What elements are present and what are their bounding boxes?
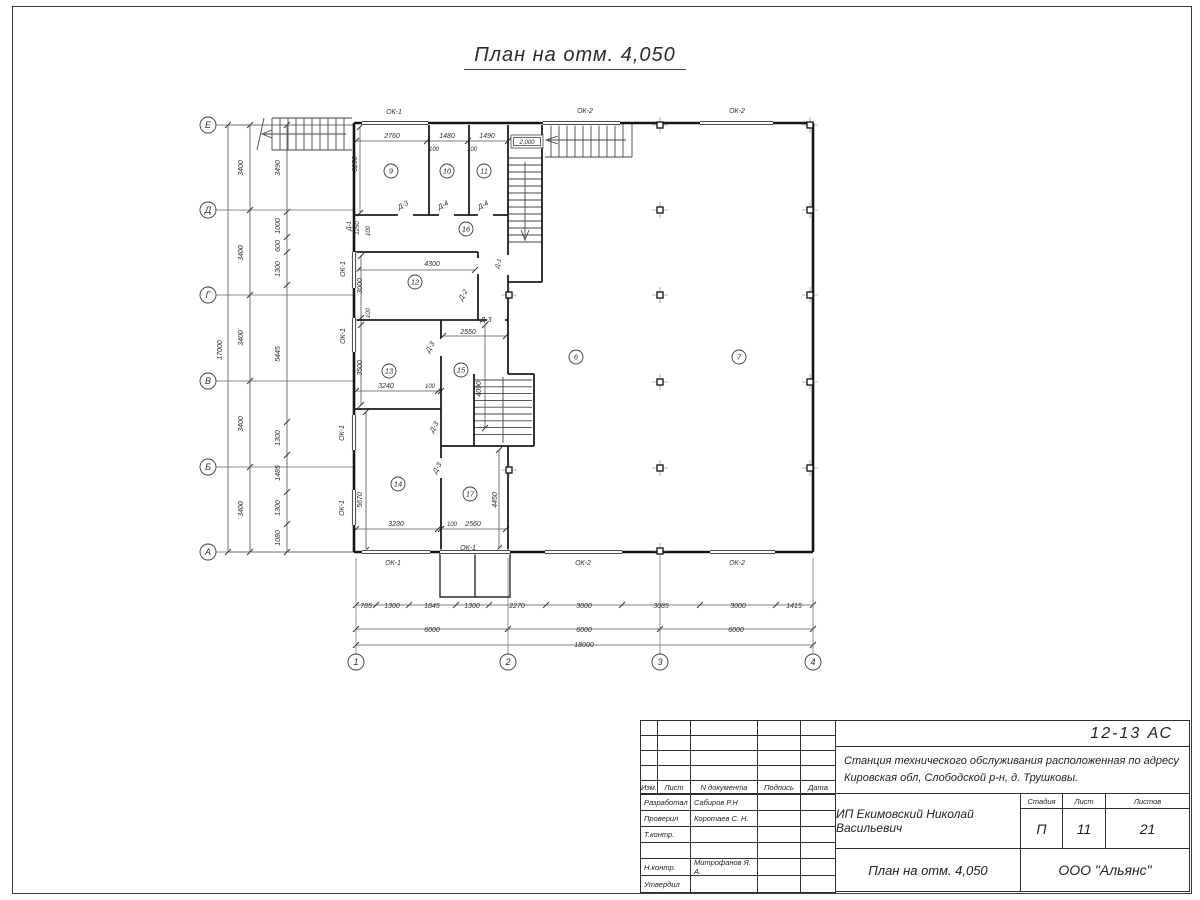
tb-sheet-value: 11 (1062, 808, 1106, 849)
tb-role: Разработал (640, 794, 691, 811)
tb-date (800, 875, 836, 893)
tb-client: ИП Екимовский Николай Васильевич (835, 793, 1021, 849)
revision-cell (690, 720, 758, 736)
drawing-heading-wrap: План на отм. 4,050 (430, 44, 720, 70)
tb-col-doc: N документа (690, 780, 758, 794)
tb-signature (757, 858, 801, 876)
tb-name (690, 875, 758, 893)
revision-cell (657, 765, 691, 781)
tb-sheets-label: Листов (1105, 793, 1190, 809)
tb-col-izm: Изм. (640, 780, 658, 794)
tb-signature (757, 826, 801, 843)
tb-signature (757, 810, 801, 827)
tb-drawing-title: План на отм. 4,050 (835, 848, 1021, 892)
tb-sheet-label: Лист (1062, 793, 1106, 809)
revision-cell (800, 765, 836, 781)
tb-date (800, 810, 836, 827)
drawing-sheet: План на отм. 4,050 (0, 0, 1200, 900)
tb-stage-value: П (1020, 808, 1063, 849)
revision-cell (690, 735, 758, 751)
revision-cell (657, 720, 691, 736)
tb-col-sign: Подпись (757, 780, 801, 794)
revision-cell (800, 750, 836, 766)
tb-date (800, 842, 836, 859)
revision-cell (690, 750, 758, 766)
tb-role: Утвердил (640, 875, 691, 893)
tb-name (690, 842, 758, 859)
title-block: Изм. Лист N документа Подпись Дата Разра… (640, 720, 1190, 892)
revision-cell (640, 765, 658, 781)
tb-stage-label: Стадия (1020, 793, 1063, 809)
tb-role: Н.контр. (640, 858, 691, 876)
tb-col-list: Лист (657, 780, 691, 794)
tb-name: Коротаев С. Н. (690, 810, 758, 827)
drawing-heading: План на отм. 4,050 (464, 44, 686, 70)
tb-doc-number: 12-13 АС (835, 720, 1190, 747)
revision-cell (800, 735, 836, 751)
revision-cell (757, 765, 801, 781)
revision-cell (640, 735, 658, 751)
tb-project-description: Станция технического обслуживания распол… (835, 746, 1190, 794)
revision-cell (690, 765, 758, 781)
tb-signature (757, 842, 801, 859)
revision-cell (657, 735, 691, 751)
tb-signature (757, 794, 801, 811)
tb-company: ООО "Альянс" (1020, 848, 1190, 892)
tb-role (640, 842, 691, 859)
tb-date (800, 826, 836, 843)
revision-cell (640, 750, 658, 766)
tb-name: Сабиров Р.Н (690, 794, 758, 811)
tb-sheets-value: 21 (1105, 808, 1190, 849)
tb-signature (757, 875, 801, 893)
tb-role: Т.контр. (640, 826, 691, 843)
tb-project-line2: Кировская обл, Слободской р-н, д. Трушко… (844, 770, 1078, 787)
tb-date (800, 794, 836, 811)
revision-cell (640, 720, 658, 736)
tb-role: Проверил (640, 810, 691, 827)
tb-col-date: Дата (800, 780, 836, 794)
tb-date (800, 858, 836, 876)
tb-name (690, 826, 758, 843)
tb-name: Митрофанов Я. А. (690, 858, 758, 876)
revision-cell (757, 735, 801, 751)
revision-cell (800, 720, 836, 736)
revision-cell (657, 750, 691, 766)
revision-cell (757, 720, 801, 736)
tb-project-line1: Станция технического обслуживания распол… (844, 753, 1179, 770)
revision-cell (757, 750, 801, 766)
